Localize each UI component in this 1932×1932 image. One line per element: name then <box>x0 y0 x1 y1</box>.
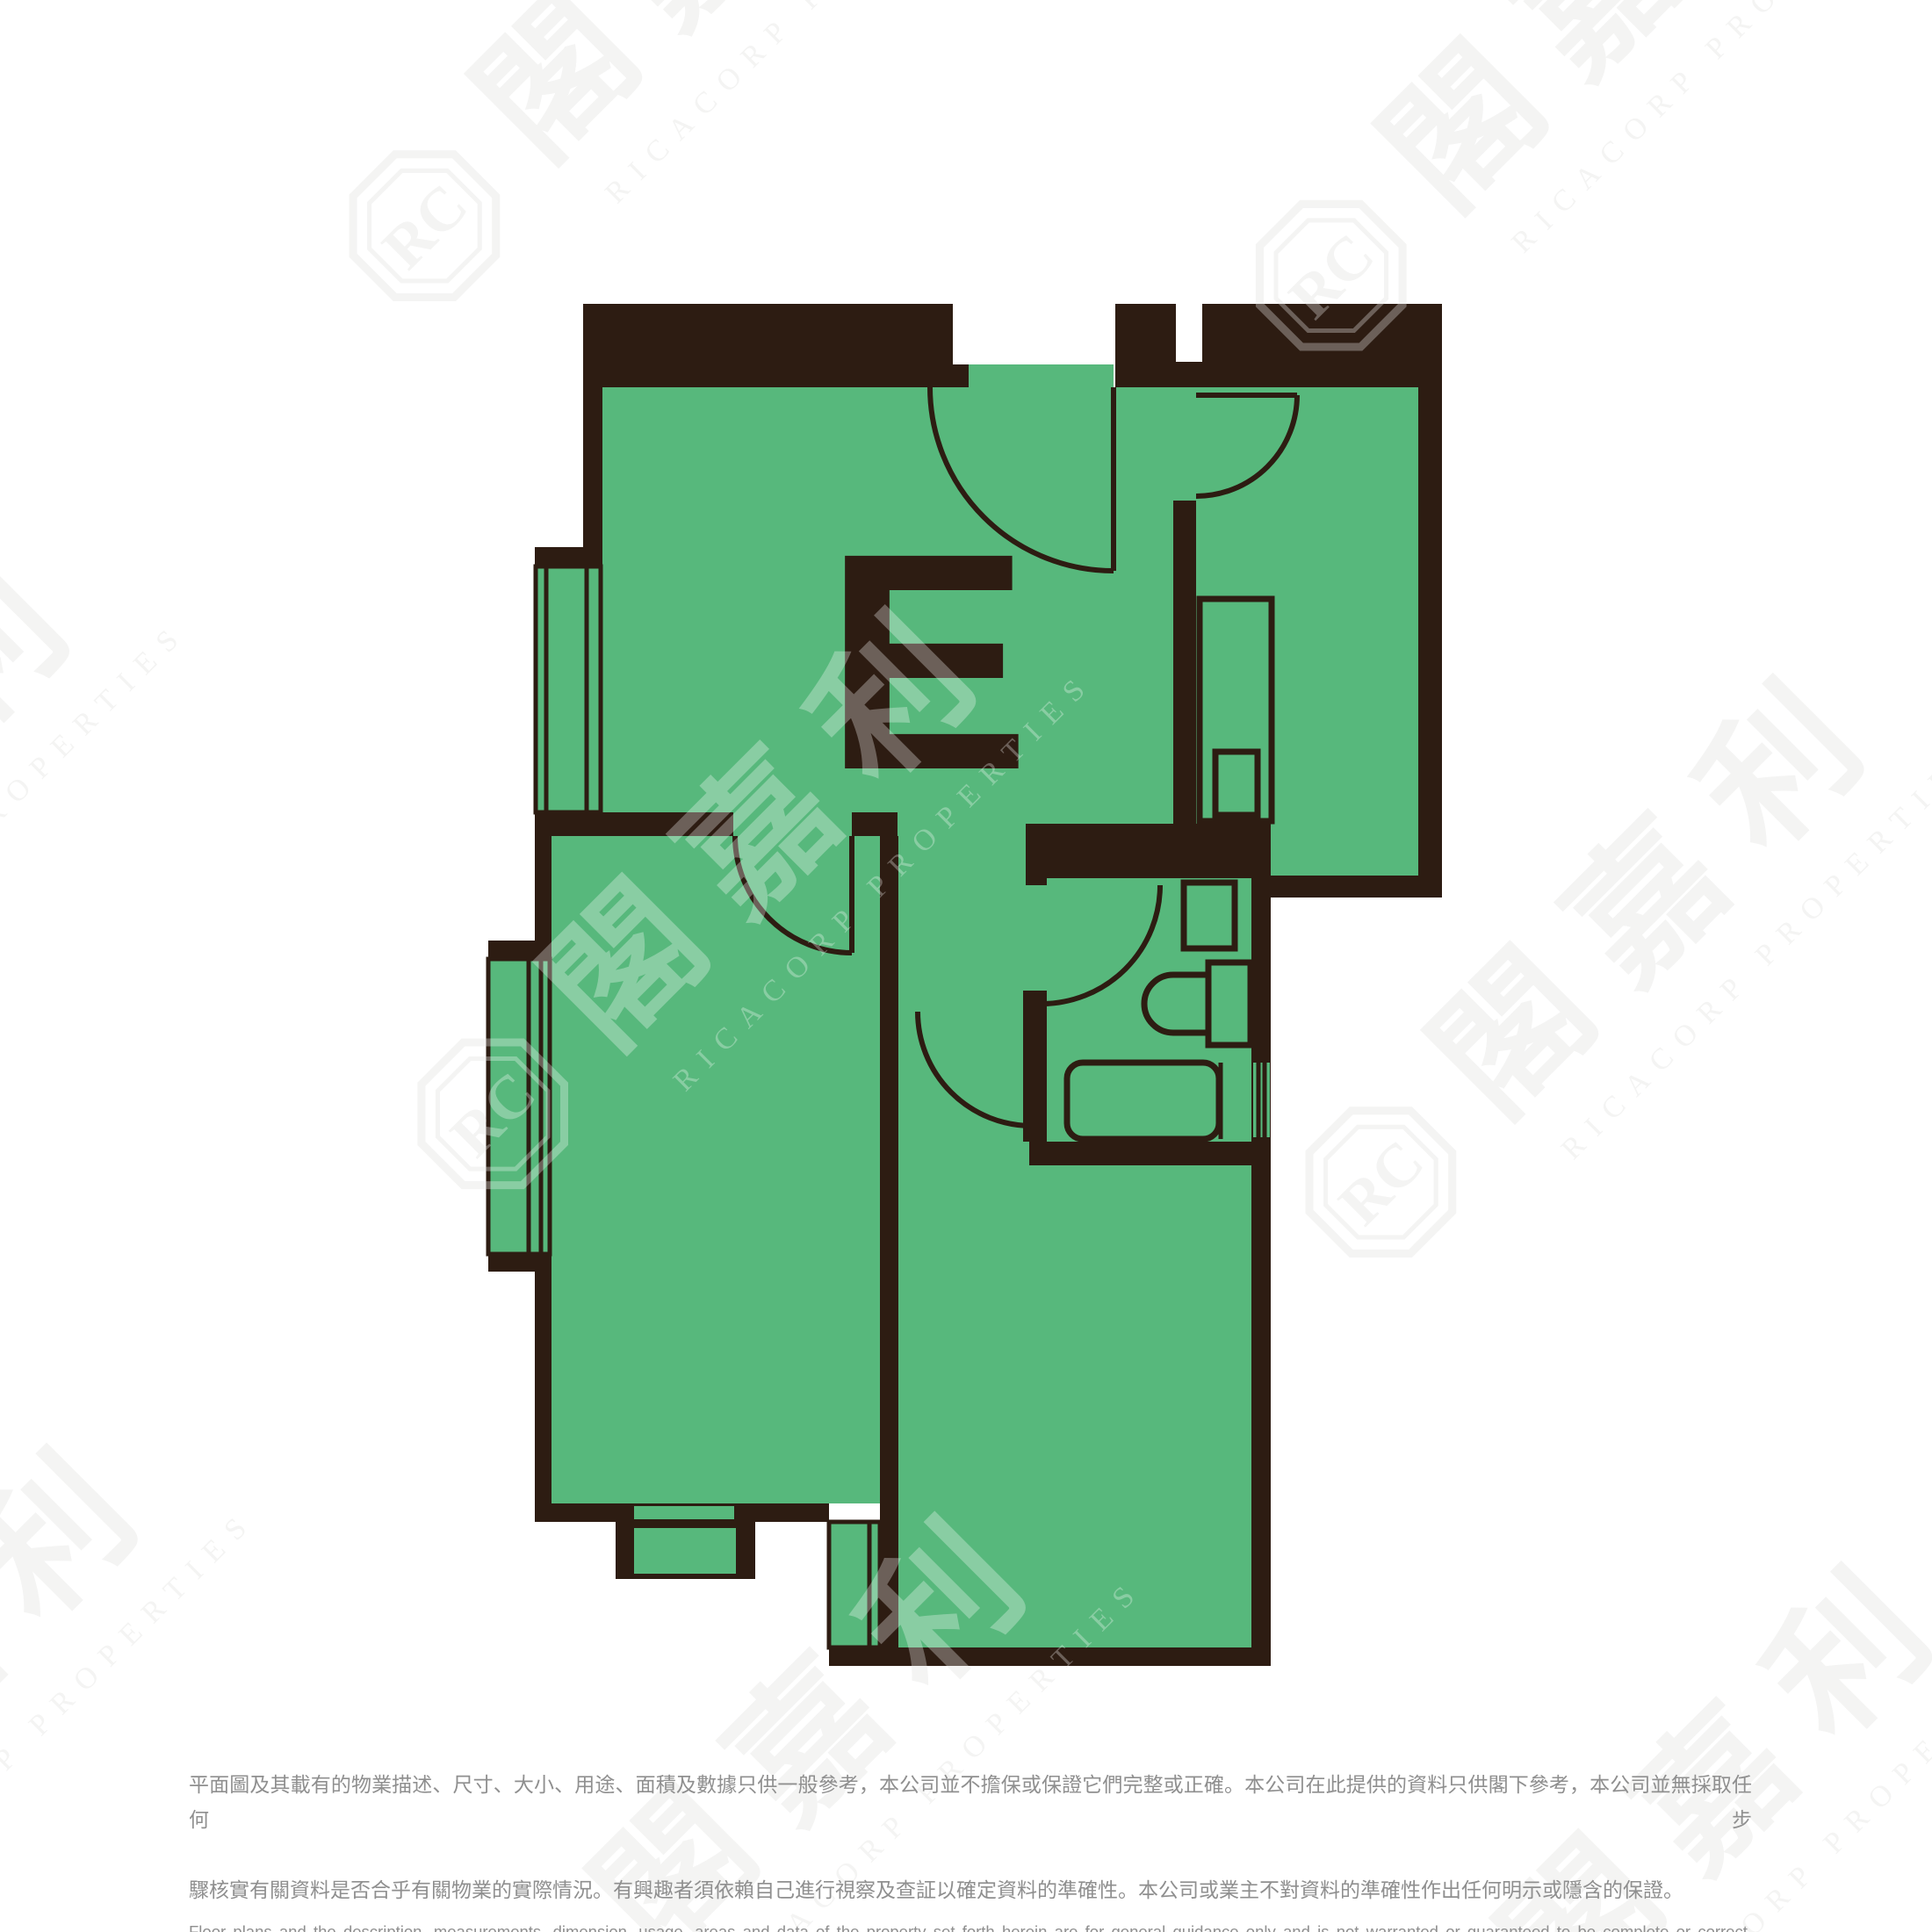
floor-plan-page: RC閣嘉利RICACORP PROPERTIESRC閣嘉利RICACORP PR… <box>0 0 1932 1932</box>
floor-plan: E <box>0 0 1932 1932</box>
ac-platform-inner <box>634 1528 736 1574</box>
bedroom-left-bottom-window <box>634 1506 734 1519</box>
unit-label: E <box>825 488 1031 834</box>
bottom-bedroom-side-window <box>829 1522 880 1647</box>
bedroom-top-right-doorway <box>1173 387 1196 501</box>
disclaimer-line-zh-2: 驟核實有關資料是否合乎有關物業的實際情況。有興趣者須依賴自己進行視察及查証以確定… <box>189 1872 1752 1907</box>
hall-and-bottom-bedroom-area <box>898 812 1251 1647</box>
disclaimer-line-zh-1: 平面圖及其載有的物業描述、尺寸、大小、用途、面積及數據只供一般參考，本公司並不擔… <box>189 1767 1752 1872</box>
entrance-threshold <box>969 364 1114 388</box>
disclaimer: 平面圖及其載有的物業描述、尺寸、大小、用途、面積及數據只供一般參考，本公司並不擔… <box>189 1767 1752 1932</box>
disclaimer-line-en-1: Floor plans and the description, measure… <box>189 1916 1752 1932</box>
bathroom-window <box>1253 1063 1270 1137</box>
bedroom-left-area <box>551 836 880 1503</box>
bedroom-top-right-area-2 <box>1270 387 1418 876</box>
